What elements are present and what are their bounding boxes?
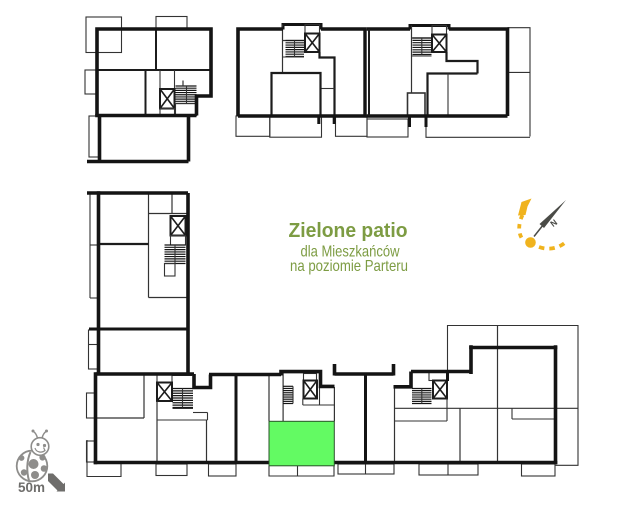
- svg-text:50m: 50m: [18, 480, 45, 495]
- svg-text:Zielone patio: Zielone patio: [289, 220, 408, 242]
- svg-text:N: N: [548, 217, 559, 229]
- svg-text:na poziomie Parteru: na poziomie Parteru: [290, 258, 408, 275]
